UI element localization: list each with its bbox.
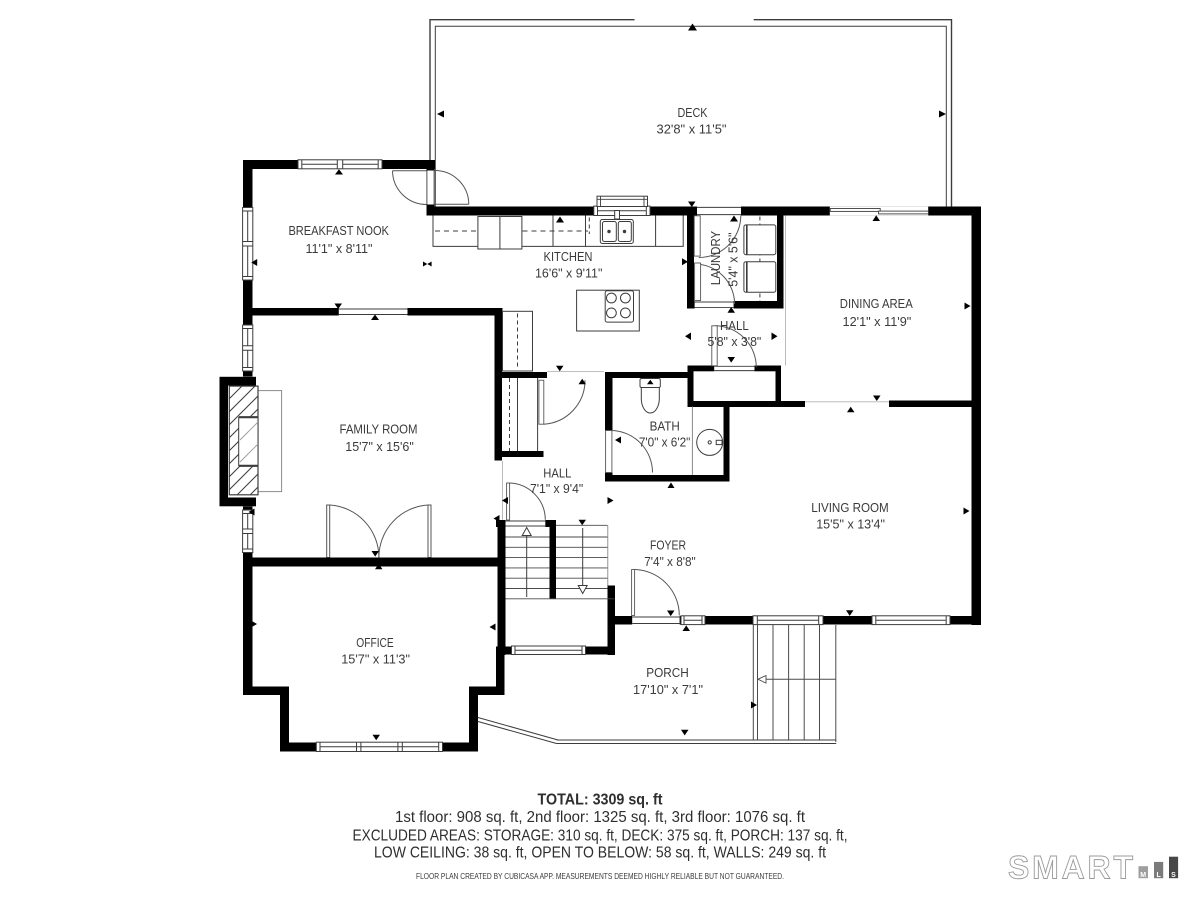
svg-text:17'10" x 7'1": 17'10" x 7'1": [633, 682, 703, 697]
svg-text:15'7" x 15'6": 15'7" x 15'6": [345, 439, 414, 454]
svg-text:DINING AREA: DINING AREA: [840, 296, 913, 311]
svg-text:FOYER: FOYER: [650, 538, 686, 553]
svg-text:15'7" x 11'3": 15'7" x 11'3": [341, 652, 410, 667]
svg-text:16'6" x 9'11": 16'6" x 9'11": [535, 265, 603, 280]
svg-text:L: L: [1156, 872, 1161, 879]
svg-text:HALL: HALL: [720, 318, 749, 333]
svg-text:S: S: [1171, 872, 1176, 879]
svg-text:7'0" x 6'2": 7'0" x 6'2": [639, 435, 691, 450]
svg-text:EXCLUDED AREAS: STORAGE: 310 s: EXCLUDED AREAS: STORAGE: 310 sq. ft, DEC…: [353, 828, 848, 845]
svg-text:M: M: [1140, 872, 1146, 879]
svg-text:TOTAL: 3309 sq. ft: TOTAL: 3309 sq. ft: [538, 792, 664, 809]
svg-text:5'8" x 3'8": 5'8" x 3'8": [708, 334, 762, 349]
svg-text:OFFICE: OFFICE: [356, 635, 394, 650]
svg-text:12'1" x 11'9": 12'1" x 11'9": [843, 314, 912, 329]
svg-text:HALL: HALL: [543, 466, 571, 481]
svg-text:PORCH: PORCH: [646, 665, 689, 680]
svg-text:FLOOR PLAN CREATED BY CUBICASA: FLOOR PLAN CREATED BY CUBICASA APP. MEAS…: [416, 871, 784, 881]
svg-text:KITCHEN: KITCHEN: [544, 249, 593, 264]
svg-text:DECK: DECK: [678, 105, 708, 120]
svg-text:32'8" x 11'5": 32'8" x 11'5": [657, 122, 727, 137]
svg-text:FAMILY ROOM: FAMILY ROOM: [340, 422, 418, 437]
svg-text:LOW CEILING: 38 sq. ft, OPEN T: LOW CEILING: 38 sq. ft, OPEN TO BELOW: 5…: [374, 845, 827, 862]
svg-text:1st floor: 908 sq. ft, 2nd flo: 1st floor: 908 sq. ft, 2nd floor: 1325 s…: [395, 809, 806, 826]
svg-text:LAUNDRY: LAUNDRY: [708, 231, 723, 285]
svg-text:7'1" x 9'4": 7'1" x 9'4": [530, 481, 584, 496]
svg-text:LIVING ROOM: LIVING ROOM: [811, 500, 889, 515]
svg-text:SMART: SMART: [1008, 850, 1133, 886]
svg-text:15'5" x 13'4": 15'5" x 13'4": [816, 516, 885, 531]
svg-text:BREAKFAST NOOK: BREAKFAST NOOK: [288, 223, 389, 238]
svg-text:5'4" x 5'6": 5'4" x 5'6": [725, 232, 740, 286]
svg-text:7'4" x 8'8": 7'4" x 8'8": [644, 554, 696, 569]
svg-text:11'1" x 8'11": 11'1" x 8'11": [306, 241, 373, 256]
svg-text:BATH: BATH: [650, 419, 680, 434]
